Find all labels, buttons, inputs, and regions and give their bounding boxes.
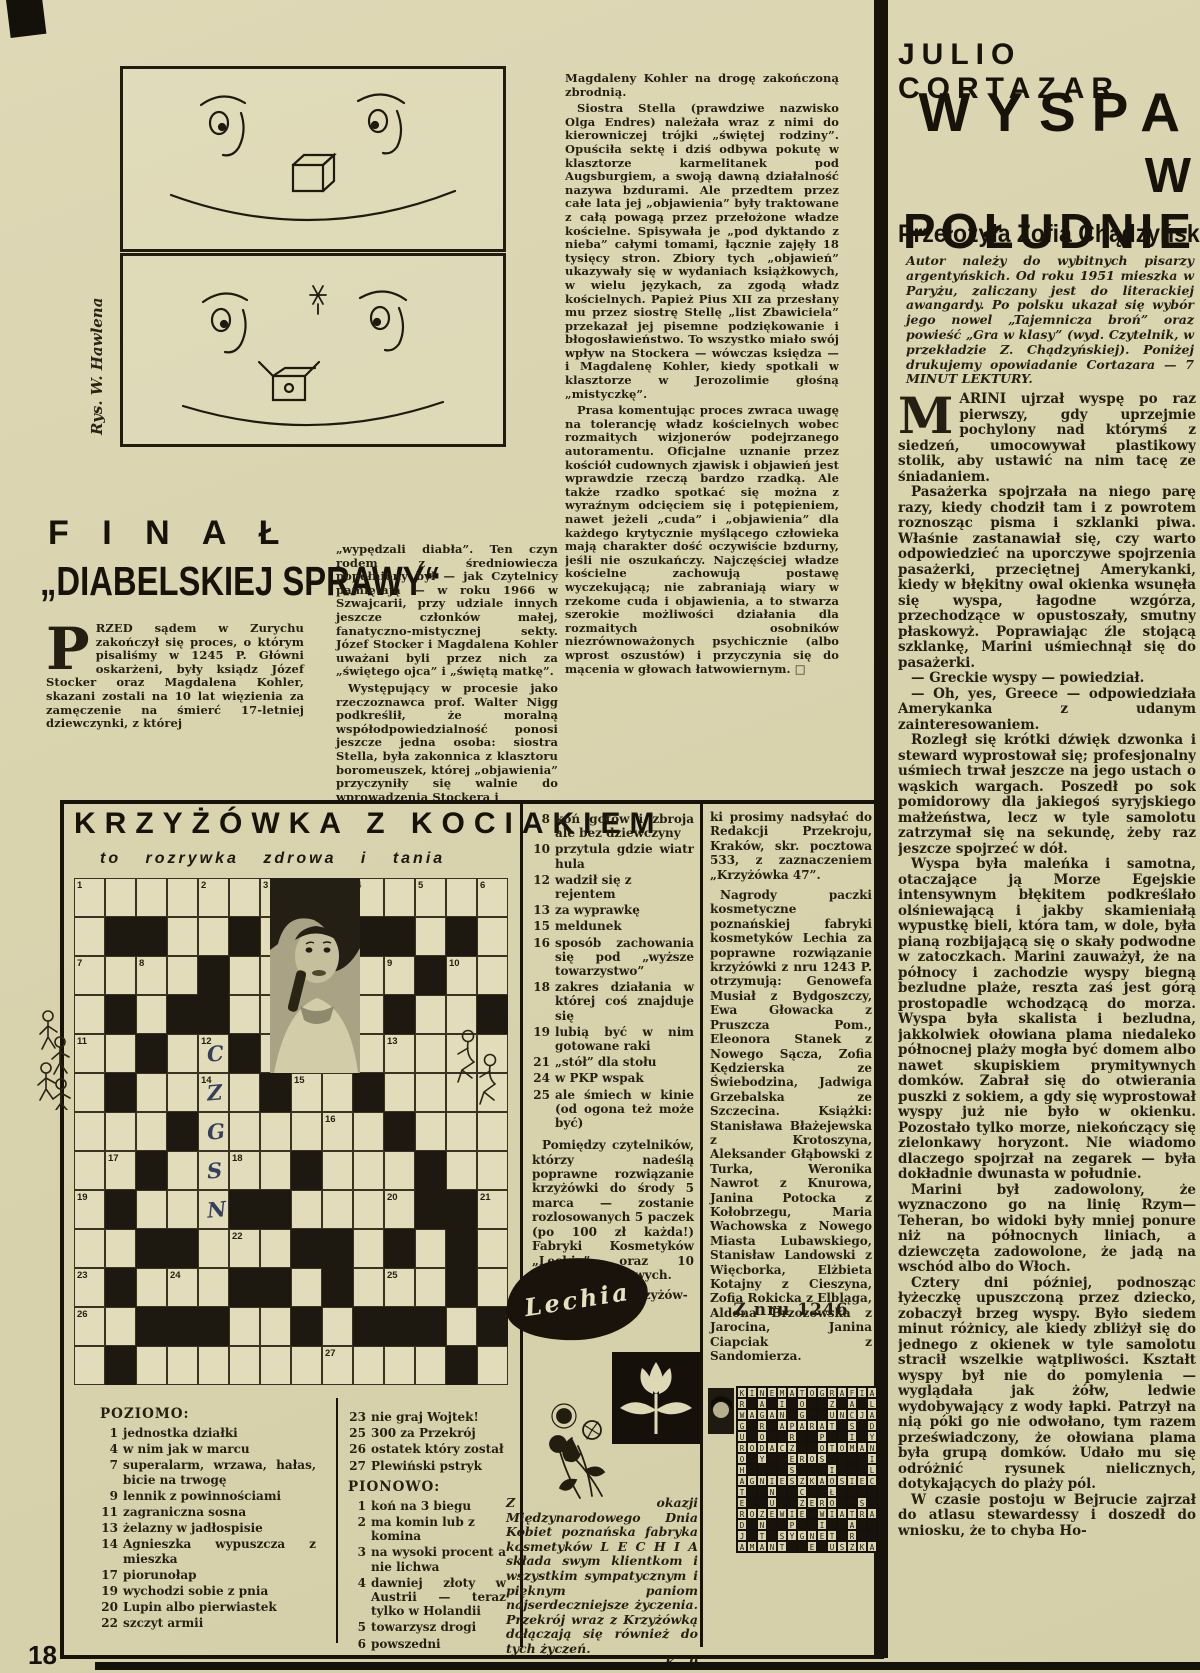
solution-cell: T <box>827 1420 837 1431</box>
clue-item: 4dawniej złoty w Austrii — teraz tylko w… <box>348 1576 506 1619</box>
grid-cell <box>167 1190 198 1229</box>
grid-cell <box>136 1190 167 1229</box>
solution-cell <box>807 1464 817 1475</box>
solution-cell: A <box>747 1409 757 1420</box>
final-col3: Magdaleny Kohler na drogę zakończoną zbr… <box>565 72 839 740</box>
clue-text: Plewiński pstryk <box>371 1459 506 1473</box>
crossword-grid-wrap: 123456789101112C1314Z15G1617S1819N202122… <box>74 878 508 1385</box>
grid-cell <box>167 917 198 956</box>
grid-cell <box>229 1112 260 1151</box>
grid-cell <box>74 917 105 956</box>
solution-cell: A <box>757 1541 767 1552</box>
crossword-divider-2 <box>700 804 703 1647</box>
solution-cell: S <box>777 1530 787 1541</box>
grid-cell: 22 <box>229 1229 260 1268</box>
solution-cell: E <box>767 1508 777 1519</box>
clue-item: 24w PKP wspak <box>532 1071 694 1085</box>
solution-cell: O <box>827 1497 837 1508</box>
grid-cell <box>322 1190 353 1229</box>
grid-cell <box>198 917 229 956</box>
clue-number: 12 <box>532 873 550 901</box>
solution-cell <box>787 1486 797 1497</box>
solution-cell: I <box>817 1519 827 1530</box>
grid-cell: 19 <box>74 1190 105 1229</box>
clue-text: koń na 3 biegu <box>371 1499 506 1513</box>
solution-cell: S <box>787 1475 797 1486</box>
clue-text: 300 za Przekrój <box>371 1426 506 1440</box>
solution-cell: U <box>827 1409 837 1420</box>
clue-text: lubią być w nim gotowane raki <box>555 1025 694 1053</box>
grid-cell: 21 <box>477 1190 508 1229</box>
clue-item: 25300 za Przekrój <box>348 1426 506 1440</box>
cartoon-panel-2-art <box>123 256 503 444</box>
solution-cell: T <box>827 1442 837 1453</box>
grid-cell-black <box>167 1229 198 1268</box>
solution-cell: Ł <box>827 1486 837 1497</box>
clue-number: 25 <box>532 1088 550 1131</box>
solution-cell <box>767 1464 777 1475</box>
grid-cell: 17 <box>105 1151 136 1190</box>
grid-cell-number: 21 <box>480 1192 491 1203</box>
solution-cell: A <box>847 1398 857 1409</box>
grid-cell <box>384 1151 415 1190</box>
grid-cell-black <box>415 1307 446 1346</box>
clue-item: 23nie graj Wojtek! <box>348 1410 506 1424</box>
clue-number: 4 <box>100 1442 118 1456</box>
grid-cell-black <box>105 1073 136 1112</box>
solution-cell <box>807 1519 817 1530</box>
solution-cell <box>837 1464 847 1475</box>
grid-cell <box>105 1034 136 1073</box>
grid-cell <box>477 917 508 956</box>
solution-cell <box>807 1508 817 1519</box>
grid-cell <box>291 1190 322 1229</box>
solution-cell: O <box>817 1442 827 1453</box>
grid-cell: 7 <box>74 956 105 995</box>
clue-text: Lupin albo pierwiastek <box>123 1600 316 1614</box>
solution-cell: W <box>777 1508 787 1519</box>
pencil-letter: G <box>206 1118 226 1144</box>
solution-cell: A <box>787 1387 797 1398</box>
grid-cell-number: 2 <box>201 880 206 891</box>
grid-cell: 11 <box>74 1034 105 1073</box>
clue-number: 27 <box>348 1459 366 1473</box>
crossword-info-column: ki prosimy nadsyłać do Redakcji Przekroj… <box>710 810 872 1369</box>
solution-cell: A <box>817 1420 827 1431</box>
solution-cell: N <box>767 1486 777 1497</box>
grid-cell-black <box>291 1229 322 1268</box>
solution-cell <box>837 1519 847 1530</box>
clue-item: 2ma komin lub z komina <box>348 1515 506 1543</box>
grid-cell <box>384 878 415 917</box>
story-dropcap: M <box>898 392 959 436</box>
solution-cell: L <box>867 1398 877 1409</box>
solution-cell: F <box>847 1387 857 1398</box>
story-para7: Marini był zadowolony, że wyznaczono go … <box>898 1183 1196 1276</box>
clue-text: zagraniczna sosna <box>123 1505 316 1519</box>
solution-cell: A <box>857 1442 867 1453</box>
grid-cell <box>415 1229 446 1268</box>
solution-cell <box>787 1541 797 1552</box>
grid-cell: 27 <box>322 1346 353 1385</box>
grid-cell-number: 18 <box>232 1153 243 1164</box>
grid-cell <box>415 995 446 1034</box>
lechia-note: Z okazji Międzynarodowego Dnia Kobiet po… <box>506 1496 698 1671</box>
grid-cell-black <box>384 995 415 1034</box>
solution-cell <box>777 1464 787 1475</box>
solution-cell: S <box>817 1453 827 1464</box>
solution-cell: T <box>797 1387 807 1398</box>
grid-cell <box>198 1229 229 1268</box>
solution-cell: Y <box>787 1530 797 1541</box>
grid-cell-black <box>198 956 229 995</box>
solution-cell <box>747 1431 757 1442</box>
solution-cell: R <box>797 1453 807 1464</box>
grid-cell <box>74 1346 105 1385</box>
solution-cell <box>867 1530 877 1541</box>
clue-number: 18 <box>532 980 550 1023</box>
clue-number: 3 <box>348 1545 366 1573</box>
grid-cell-black <box>415 1151 446 1190</box>
poziomo-label: POZIOMO: <box>100 1406 316 1422</box>
solution-cell <box>797 1519 807 1530</box>
solution-cell: O <box>837 1442 847 1453</box>
story-para9: W czasie postoju w Bejrucie zajrzał do a… <box>898 1493 1196 1540</box>
grid-cell-black <box>291 1151 322 1190</box>
grid-cell <box>415 1073 446 1112</box>
clue-number: 13 <box>532 903 550 917</box>
grid-cell <box>136 1268 167 1307</box>
solution-cell <box>837 1420 847 1431</box>
solution-cell <box>777 1431 787 1442</box>
grid-cell <box>415 917 446 956</box>
solution-cell: O <box>737 1453 747 1464</box>
solution-cell: D <box>867 1420 877 1431</box>
solution-cell: W <box>737 1409 747 1420</box>
clue-number: 25 <box>348 1426 366 1440</box>
grid-cell: 24 <box>167 1268 198 1307</box>
grid-cell-black <box>384 1229 415 1268</box>
grid-cell <box>136 1346 167 1385</box>
grid-cell <box>291 1112 322 1151</box>
grid-cell <box>260 1112 291 1151</box>
clue-item: 8koń gotów i zbroja ale bez dziewczyny <box>532 812 694 840</box>
solution-cell: A <box>847 1519 857 1530</box>
solution-cell <box>817 1541 827 1552</box>
solution-cell <box>777 1497 787 1508</box>
clue-item: 1jednostka działki <box>100 1426 316 1440</box>
solution-cell <box>807 1409 817 1420</box>
solution-cell: T <box>847 1508 857 1519</box>
grid-cell <box>198 1268 229 1307</box>
solution-cell: Z <box>847 1541 857 1552</box>
solution-cell: I <box>847 1475 857 1486</box>
grid-cell <box>167 878 198 917</box>
grid-cell <box>415 1268 446 1307</box>
grid-cell <box>477 1268 508 1307</box>
grid-cell <box>167 1151 198 1190</box>
final-title-line1: F I N A Ł <box>48 514 291 553</box>
solution-cell <box>777 1519 787 1530</box>
grid-cell-number: 22 <box>232 1231 243 1242</box>
solution-cell: N <box>757 1519 767 1530</box>
solution-cell: U <box>827 1541 837 1552</box>
solution-cell <box>807 1486 817 1497</box>
solution-cell <box>847 1497 857 1508</box>
grid-cell-black <box>446 1229 477 1268</box>
clue-item: 12wadził się z rejentem <box>532 873 694 901</box>
grid-cell <box>353 1190 384 1229</box>
grid-cell <box>167 1073 198 1112</box>
grid-cell-black <box>167 1112 198 1151</box>
grid-cell-number: 6 <box>480 880 485 891</box>
grid-cell <box>229 995 260 1034</box>
solution-cell: N <box>767 1541 777 1552</box>
solution-cell: G <box>757 1409 767 1420</box>
clue-item: 21„stół” dla stołu <box>532 1055 694 1069</box>
clue-number: 4 <box>348 1576 366 1619</box>
grid-cell-number: 16 <box>325 1114 336 1125</box>
clue-number: 5 <box>348 1620 366 1634</box>
solution-cell: T <box>777 1541 787 1552</box>
grid-cell <box>415 1034 446 1073</box>
solution-cell: N <box>837 1409 847 1420</box>
solution-cell: P <box>787 1420 797 1431</box>
solution-cell: E <box>857 1475 867 1486</box>
solution-cell: O <box>747 1442 757 1453</box>
clue-text: nie graj Wojtek! <box>371 1410 506 1424</box>
clue-item: 20Lupin albo pierwiastek <box>100 1600 316 1614</box>
grid-cell-black <box>384 1112 415 1151</box>
grid-cell <box>415 1112 446 1151</box>
clue-text: powszedni <box>371 1637 506 1651</box>
clue-item: 16sposób zachowania się pod „wyższe towa… <box>532 936 694 979</box>
cartoon-panel-2 <box>120 253 506 447</box>
grid-cell <box>260 1346 291 1385</box>
final-col3-para2: Siostra Stella (prawdziwe nazwisko Olga … <box>565 102 839 401</box>
crossword-divider-3 <box>336 1398 338 1643</box>
solution-cell: E <box>807 1497 817 1508</box>
solution-cell: D <box>737 1519 747 1530</box>
final-col3-para1: Magdaleny Kohler na drogę zakończoną zbr… <box>565 72 839 99</box>
solution-cell <box>837 1398 847 1409</box>
grid-cell-number: 20 <box>387 1192 398 1203</box>
grid-cell-black <box>291 1307 322 1346</box>
poziomo-column: POZIOMO: 1jednostka działki 4w nim jak w… <box>100 1400 316 1633</box>
clue-item: 26ostatek który został <box>348 1442 506 1456</box>
story-para4: — Oh, yes, Greece — odpowiedziała Ameryk… <box>898 687 1196 734</box>
page-number: 18 <box>28 1640 57 1671</box>
story-title-line1: WYSPA <box>898 80 1196 144</box>
grid-cell <box>322 1151 353 1190</box>
grid-cell: 2 <box>198 878 229 917</box>
story-para6: Wyspa była maleńka i samotna, otaczające… <box>898 857 1196 1183</box>
grid-cell: 26 <box>74 1307 105 1346</box>
solution-cell: S <box>847 1420 857 1431</box>
clue-number: 20 <box>100 1600 118 1614</box>
clue-number: 11 <box>100 1505 118 1519</box>
grid-cell: S <box>198 1151 229 1190</box>
clue-text: dawniej złoty w Austrii — teraz tylko w … <box>371 1576 506 1619</box>
solution-cell <box>757 1497 767 1508</box>
solution-cell: N <box>757 1387 767 1398</box>
solution-cell: M <box>747 1541 757 1552</box>
solution-cell: E <box>807 1541 817 1552</box>
grid-cell-black <box>446 917 477 956</box>
grid-cell <box>136 1112 167 1151</box>
solution-cell: A <box>797 1420 807 1431</box>
clue-text: sposób zachowania się pod „wyższe towarz… <box>555 936 694 979</box>
solution-cell <box>867 1519 877 1530</box>
grid-cell-number: 5 <box>418 880 423 891</box>
clue-item: 6powszedni <box>348 1637 506 1651</box>
final-dropcap: P <box>46 622 96 672</box>
solution-cell <box>747 1486 757 1497</box>
solution-cell <box>837 1497 847 1508</box>
solution-cell <box>767 1530 777 1541</box>
solution-cell: Z <box>787 1442 797 1453</box>
clue-item: 25ale śmiech w kinie (od ogona też może … <box>532 1088 694 1131</box>
solution-cell: K <box>857 1541 867 1552</box>
solution-cell: A <box>737 1475 747 1486</box>
solution-cell: M <box>847 1442 857 1453</box>
clue-text: żelazny w jadłospisie <box>123 1521 316 1535</box>
clues-mid-column: 8koń gotów i zbroja ale bez dziewczyny 1… <box>532 812 694 1309</box>
solution-cell <box>757 1464 767 1475</box>
grid-cell-black <box>353 1073 384 1112</box>
grid-cell-black <box>229 1034 260 1073</box>
grid-cell-black <box>136 1151 167 1190</box>
grid-cell-black <box>198 1307 229 1346</box>
grid-cell <box>353 1229 384 1268</box>
solution-cell: U <box>767 1497 777 1508</box>
clue-number: 24 <box>532 1071 550 1085</box>
clue-item: 17piorunołap <box>100 1568 316 1582</box>
grid-cell <box>167 1346 198 1385</box>
clue-item: 4w nim jak w marcu <box>100 1442 316 1456</box>
clue-text: Agnieszka wypuszcza z mieszka <box>123 1537 316 1565</box>
grid-cell <box>74 1073 105 1112</box>
clue-text: na wysoki procent a nie lichwa <box>371 1545 506 1573</box>
solution-cell <box>767 1453 777 1464</box>
cartoon-credit: Rys. W. Hawlena <box>88 285 106 435</box>
solution-cell: A <box>767 1409 777 1420</box>
grid-cell-number: 27 <box>325 1348 336 1359</box>
story-para8: Cztery dni później, podnosząc łyżeczkę u… <box>898 1276 1196 1493</box>
solution-cell: P <box>787 1519 797 1530</box>
solution-cell <box>857 1530 867 1541</box>
clue-item: 14Agnieszka wypuszcza z mieszka <box>100 1537 316 1565</box>
grid-cell <box>229 1307 260 1346</box>
grid-cell <box>477 1229 508 1268</box>
grid-cell <box>167 956 198 995</box>
solution-cell <box>867 1486 877 1497</box>
grid-cell: 10 <box>446 956 477 995</box>
solution-photo <box>708 1388 734 1434</box>
solution-cell: R <box>787 1431 797 1442</box>
solution-cell: A <box>867 1409 877 1420</box>
grid-cell <box>229 1073 260 1112</box>
pencil-letter: C <box>206 1040 225 1066</box>
clue-item: 19lubią być w nim gotowane raki <box>532 1025 694 1053</box>
solution-cell: O <box>757 1431 767 1442</box>
clue-text: przytula gdzie wiatr hula <box>555 842 694 870</box>
solution-cell: Z <box>827 1398 837 1409</box>
solution-cell: R <box>737 1442 747 1453</box>
clue-item: 5towarzysz drogi <box>348 1620 506 1634</box>
grid-cell: 20 <box>384 1190 415 1229</box>
solution-cell: H <box>737 1464 747 1475</box>
grid-cell <box>74 1112 105 1151</box>
clue-item: 15meldunek <box>532 919 694 933</box>
solution-cell <box>797 1464 807 1475</box>
grid-cell <box>322 1307 353 1346</box>
clue-item: 7superalarm, wrzawa, hałas, bicie na trw… <box>100 1458 316 1486</box>
solution-cell: G <box>797 1530 807 1541</box>
grid-cell-black <box>198 995 229 1034</box>
clue-text: koń gotów i zbroja ale bez dziewczyny <box>555 812 694 840</box>
grid-cell <box>74 1229 105 1268</box>
clue-number: 2 <box>348 1515 366 1543</box>
prizes-list: Nagrody paczki kosmetyczne poznańskiej f… <box>710 888 872 1363</box>
submit-instructions: ki prosimy nadsyłać do Redakcji Przekroj… <box>710 810 872 882</box>
solution-cell: G <box>747 1475 757 1486</box>
solution-cell: D <box>757 1442 767 1453</box>
grid-cell <box>74 1151 105 1190</box>
crossword-subtitle: to rozrywka zdrowa i tania <box>100 850 445 868</box>
solution-cell <box>797 1431 807 1442</box>
clue-text: jednostka działki <box>123 1426 316 1440</box>
grid-cell-black <box>353 1307 384 1346</box>
grid-cell-black <box>415 956 446 995</box>
solution-cell <box>817 1464 827 1475</box>
solution-cell <box>807 1442 817 1453</box>
solution-cell: S <box>787 1464 797 1475</box>
grid-cell-number: 11 <box>77 1036 87 1047</box>
grid-cell-black <box>477 1307 508 1346</box>
grid-cell-number: 7 <box>77 958 82 969</box>
solution-cell <box>837 1453 847 1464</box>
grid-cell-black <box>260 1268 291 1307</box>
solution-cell: O <box>797 1398 807 1409</box>
flower-bouquet-art <box>534 1400 636 1504</box>
grid-cell: 16 <box>322 1112 353 1151</box>
solution-cell: N <box>777 1409 787 1420</box>
solution-cell: R <box>737 1508 747 1519</box>
solution-cell: Z <box>797 1475 807 1486</box>
solution-cell: C <box>867 1475 877 1486</box>
grid-cell <box>105 1112 136 1151</box>
solution-cell: A <box>777 1420 787 1431</box>
grid-cell <box>136 995 167 1034</box>
grid-cell-black <box>167 1307 198 1346</box>
grid-cell <box>74 995 105 1034</box>
grid-cell <box>477 1112 508 1151</box>
solution-cell: I <box>777 1398 787 1409</box>
story-body: MARINI ujrzał wyspę po raz pierwszy, gdy… <box>898 392 1196 1653</box>
solution-cell <box>827 1519 837 1530</box>
grid-cell-number: 24 <box>170 1270 181 1281</box>
grid-cell-black <box>105 1190 136 1229</box>
clue-number: 21 <box>532 1055 550 1069</box>
clue-item: 13za wyprawkę <box>532 903 694 917</box>
clue-text: szczyt armii <box>123 1616 316 1630</box>
grid-cell: 23 <box>74 1268 105 1307</box>
solution-cell: A <box>867 1387 877 1398</box>
grid-cell-number: 25 <box>387 1270 398 1281</box>
grid-cell-black <box>229 1268 260 1307</box>
magazine-page: Rys. W. Hawlena <box>0 0 1200 1673</box>
